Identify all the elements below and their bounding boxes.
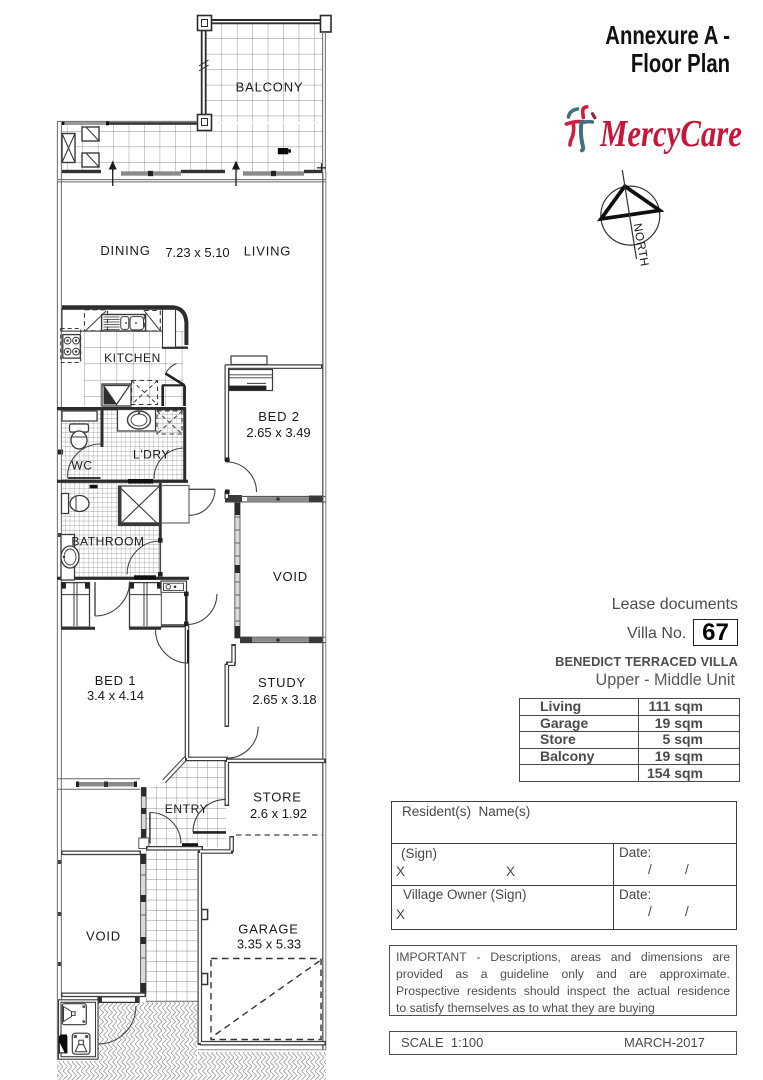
svg-text:KITCHEN: KITCHEN (104, 351, 161, 365)
svg-text:3.4 x 4.14: 3.4 x 4.14 (87, 688, 144, 703)
svg-text:LIVING: LIVING (244, 244, 291, 259)
svg-text:GARAGE: GARAGE (238, 922, 298, 937)
svg-text:BED 2: BED 2 (258, 409, 300, 424)
svg-text:STORE: STORE (253, 790, 302, 805)
svg-text:2.65 x 3.49: 2.65 x 3.49 (246, 425, 310, 440)
svg-text:DINING: DINING (100, 243, 150, 258)
svg-text:2.6 x 1.92: 2.6 x 1.92 (250, 806, 307, 821)
svg-text:VOID: VOID (273, 569, 308, 584)
svg-text:BALCONY: BALCONY (236, 80, 304, 95)
svg-text:BED 1: BED 1 (95, 673, 137, 688)
svg-text:7.23 x 5.10: 7.23 x 5.10 (165, 245, 229, 260)
svg-text:STUDY: STUDY (258, 675, 306, 690)
svg-text:BATHROOM: BATHROOM (71, 535, 144, 549)
svg-text:VOID: VOID (86, 929, 121, 944)
svg-text:ENTRY: ENTRY (165, 802, 208, 816)
svg-text:L'DRY: L'DRY (133, 448, 170, 462)
svg-text:3.35 x 5.33: 3.35 x 5.33 (237, 937, 301, 952)
svg-text:2.65 x 3.18: 2.65 x 3.18 (252, 692, 316, 707)
svg-text:WC: WC (71, 459, 92, 473)
